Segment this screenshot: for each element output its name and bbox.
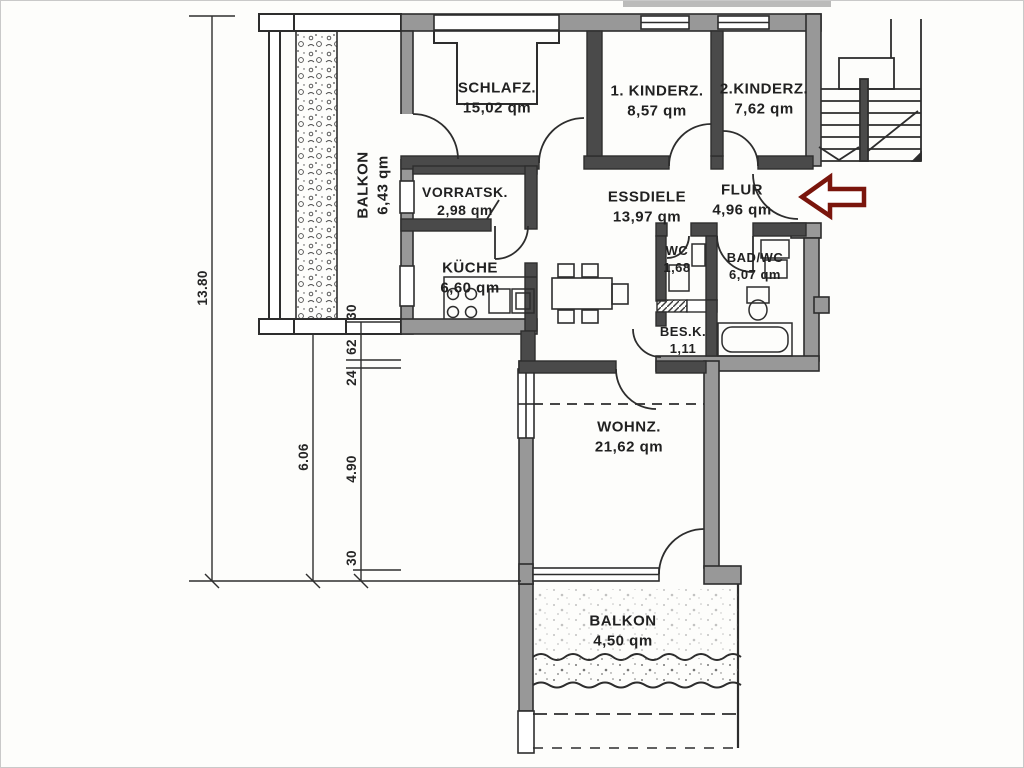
room-name: VORRATSK.: [422, 183, 508, 201]
dimension-label-balkon-laenge: 6.06: [295, 443, 313, 470]
floor-plan-page: SCHLAFZ. 15,02 qm 1. KINDERZ. 8,57 qm 2.…: [0, 0, 1024, 768]
dining-table: [552, 264, 628, 323]
room-label-essdiele: ESSDIELE 13,97 qm: [608, 188, 686, 227]
room-area: 7,62 qm: [720, 99, 808, 119]
room-name: KÜCHE: [440, 259, 499, 279]
room-label-balkon-west: BALKON 6,43 qm: [354, 151, 393, 218]
room-area: 1,68: [663, 260, 690, 277]
room-label-bad-wc: BAD/WC 6,07 qm: [727, 250, 783, 284]
room-area: 4,96 qm: [712, 200, 771, 220]
room-label-kinderzimmer2: 2.KINDERZ. 7,62 qm: [720, 80, 808, 119]
room-label-kinderzimmer1: 1. KINDERZ. 8,57 qm: [610, 82, 703, 121]
room-name: SCHLAFZ.: [458, 79, 536, 99]
room-name: FLUR: [712, 181, 771, 201]
room-area: 6,07 qm: [727, 267, 783, 284]
room-label-kueche: KÜCHE 6,60 qm: [440, 259, 499, 298]
dimension-label-wand-24: 24: [343, 370, 361, 386]
room-label-vorratskammer: VORRATSK. 2,98 qm: [422, 183, 508, 219]
room-area: 15,02 qm: [458, 98, 536, 118]
room-area: 1,11: [660, 341, 706, 358]
room-label-besenkammer: BES.K. 1,11: [660, 324, 706, 358]
room-name: WC: [663, 243, 690, 260]
room-area: 4,50 qm: [589, 631, 656, 651]
room-label-wc: WC 1,68: [663, 243, 690, 277]
room-name: BALKON: [589, 612, 656, 632]
dimension-label-wand-oben: 30: [343, 304, 361, 320]
dimension-label-wohnzimmer-breite: 4.90: [343, 455, 361, 482]
room-label-schlafzimmer: SCHLAFZ. 15,02 qm: [458, 79, 536, 118]
room-name: ESSDIELE: [608, 188, 686, 208]
room-area: 6,43 qm: [373, 151, 393, 218]
room-area: 8,57 qm: [610, 101, 703, 121]
room-label-balkon-sued: BALKON 4,50 qm: [589, 612, 656, 651]
room-name: 2.KINDERZ.: [720, 80, 808, 100]
dimension-label-wand-62: 62: [343, 339, 361, 355]
room-name: 1. KINDERZ.: [610, 82, 703, 102]
room-label-wohnzimmer: WOHNZ. 21,62 qm: [595, 418, 663, 457]
room-area: 6,60 qm: [440, 278, 499, 298]
dimension-label-total-height: 13.80: [194, 270, 212, 305]
room-area: 13,97 qm: [608, 207, 686, 227]
room-area: 2,98 qm: [422, 201, 508, 219]
entrance-arrow-icon: [802, 177, 864, 216]
staircase: [819, 19, 921, 161]
room-name: WOHNZ.: [595, 418, 663, 438]
dimension-label-wand-unten: 30: [343, 550, 361, 566]
room-name: BALKON: [354, 151, 374, 218]
scan-edge-artifact: [623, 1, 831, 7]
room-label-flur: FLUR 4,96 qm: [712, 181, 771, 220]
room-name: BES.K.: [660, 324, 706, 341]
room-area: 21,62 qm: [595, 437, 663, 457]
room-name: BAD/WC: [727, 250, 783, 267]
